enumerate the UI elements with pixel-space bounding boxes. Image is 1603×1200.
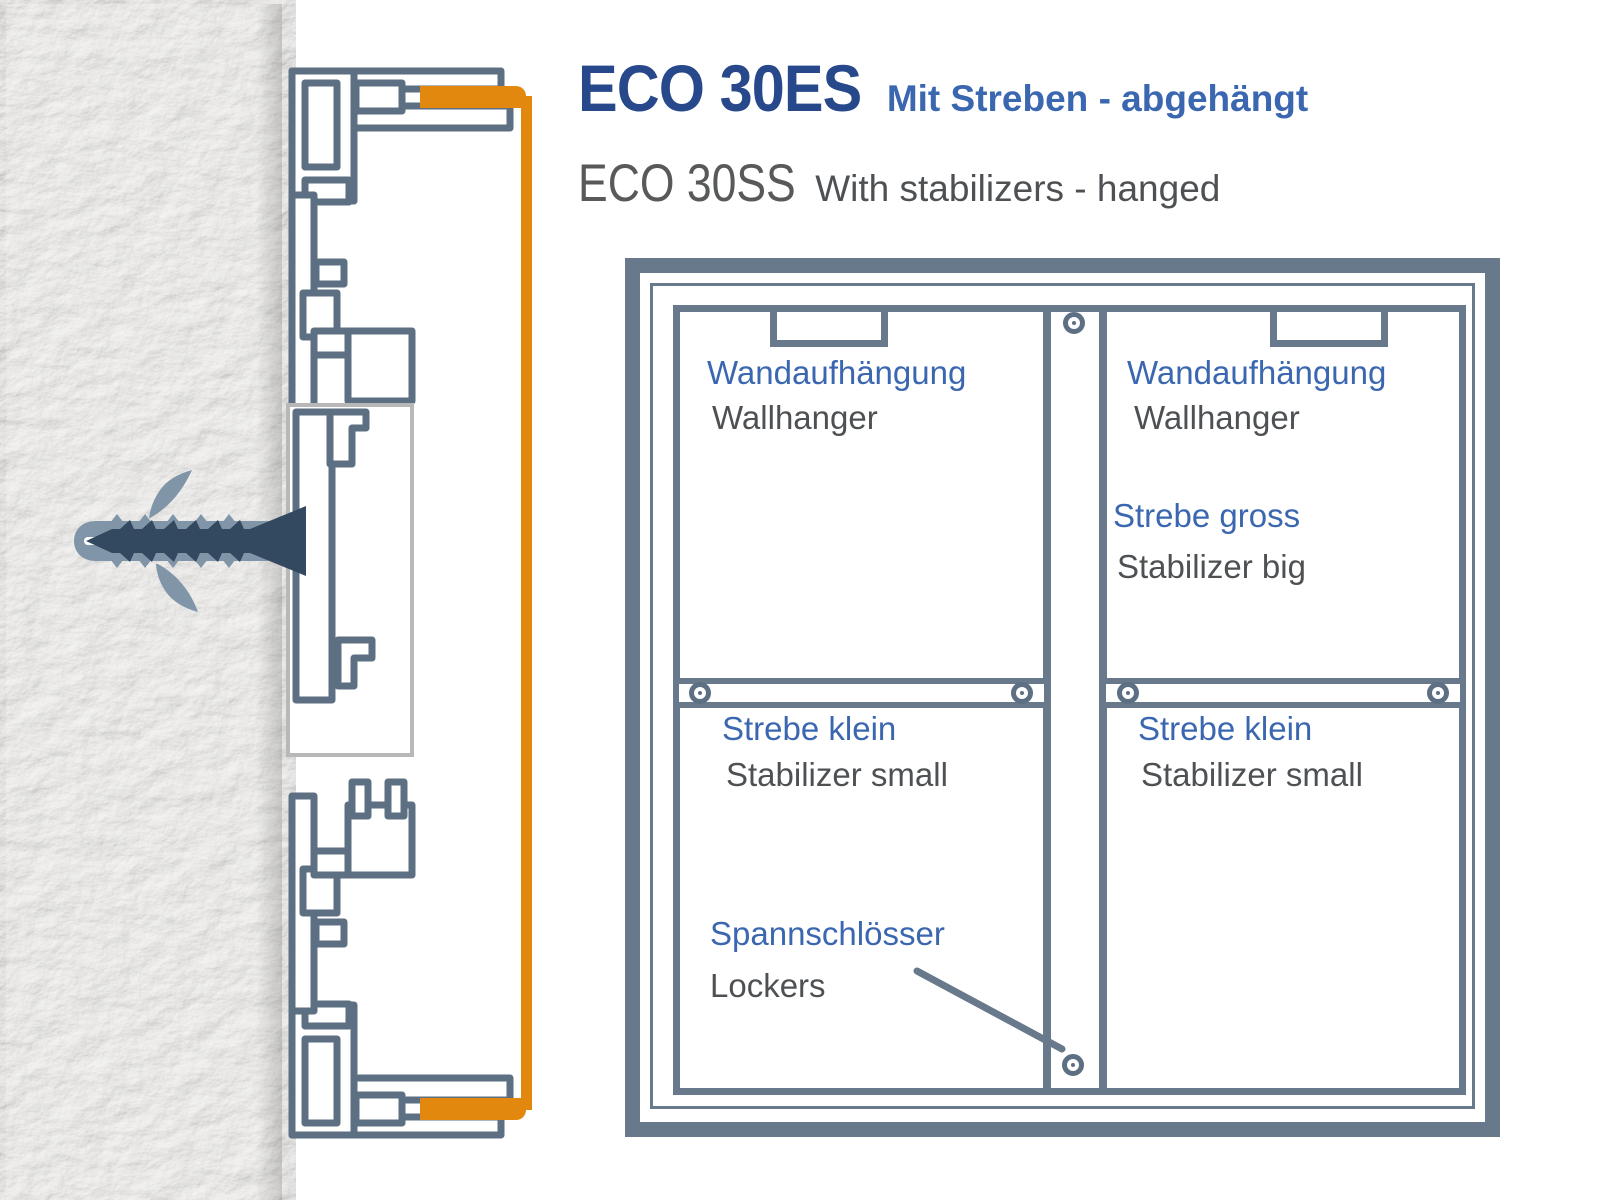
profile-top-section [292,71,510,410]
orange-top-bar [420,86,526,108]
profile-bottom-section [292,782,510,1135]
label-stabilizer-small-right-de: Strebe klein [1138,711,1312,747]
label-stabilizer-big-de: Strebe gross [1113,498,1300,534]
label-stabilizer-small-right-en: Stabilizer small [1141,757,1363,793]
label-stabilizer-small-left-de: Strebe klein [722,711,896,747]
label-wallhanger-right-en: Wallhanger [1134,400,1300,436]
stabilizer-band-left [673,678,1050,708]
infographic-canvas: ECO 30ES Mit Streben - abgehängt ECO 30S… [0,0,1603,1200]
label-stabilizer-small-left-en: Stabilizer small [726,757,948,793]
label-wallhanger-left-de: Wandaufhängung [707,355,966,391]
label-lockers-en: Lockers [710,968,826,1004]
orange-bottom-bar [420,1098,526,1120]
label-lockers-de: Spannschlösser [710,916,945,952]
screw-icon [1011,682,1033,704]
product-title-en: ECO 30SS [578,153,796,214]
screw-icon [1427,682,1449,704]
label-stabilizer-big-en: Stabilizer big [1117,549,1306,585]
product-subtitle-de: Mit Streben - abgehängt [887,78,1308,120]
label-wallhanger-right-de: Wandaufhängung [1127,355,1386,391]
wallhanger-notch-left [770,305,888,347]
screw-icon [1063,312,1085,334]
wallhanger-notch-right [1270,305,1388,347]
product-title-de: ECO 30ES [578,50,861,126]
screw-icon [1117,682,1139,704]
center-stabilizer-bar [1044,305,1106,1095]
orange-face-strip [420,86,532,1120]
screw-icon [689,682,711,704]
label-wallhanger-left-en: Wallhanger [712,400,878,436]
product-subtitle-en: With stabilizers - hanged [815,168,1220,210]
wall-texture [6,4,282,1200]
frame-rear-view: Wandaufhängung Wallhanger Wandaufhängung… [625,258,1500,1137]
stabilizer-band-right [1100,678,1466,708]
wallhanger-plate [288,405,412,755]
screw-icon [1062,1054,1084,1076]
wall-and-profile-cross-section [0,0,560,1200]
